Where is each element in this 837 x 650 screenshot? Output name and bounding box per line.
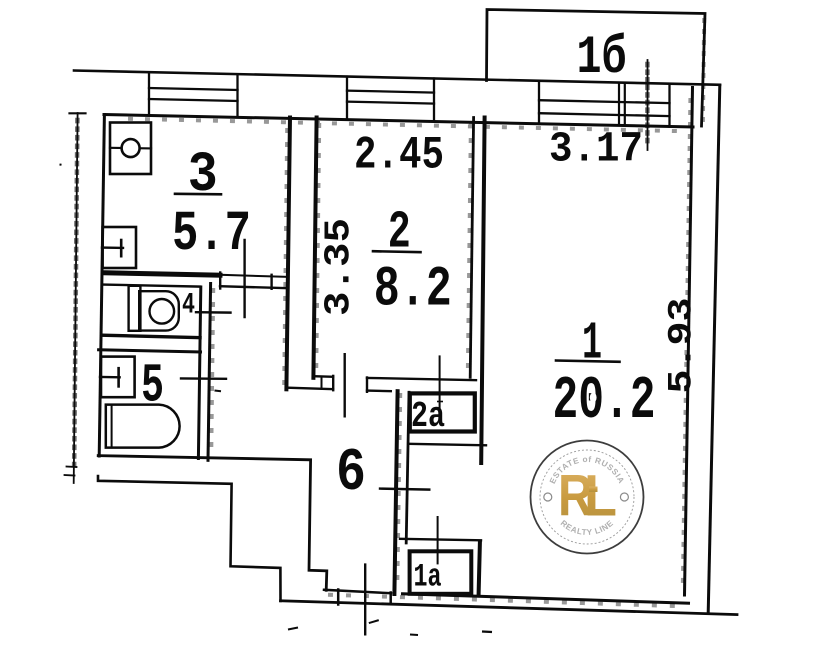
svg-text:1: 1: [582, 314, 602, 374]
svg-text:5: 5: [141, 355, 164, 418]
svg-text:3.17: 3.17: [549, 125, 643, 174]
svg-text:3: 3: [188, 144, 218, 208]
svg-text:20.2: 20.2: [553, 368, 656, 436]
svg-text:5.7: 5.7: [172, 203, 251, 267]
svg-text:3.35: 3.35: [319, 218, 360, 316]
svg-text:8.2: 8.2: [374, 259, 452, 323]
svg-text:4: 4: [182, 288, 195, 322]
svg-text:5.93: 5.93: [664, 298, 702, 394]
svg-text:1б: 1б: [577, 28, 627, 89]
svg-text:2.45: 2.45: [354, 129, 444, 181]
svg-text:2: 2: [388, 202, 411, 262]
svg-text:6: 6: [336, 440, 366, 508]
